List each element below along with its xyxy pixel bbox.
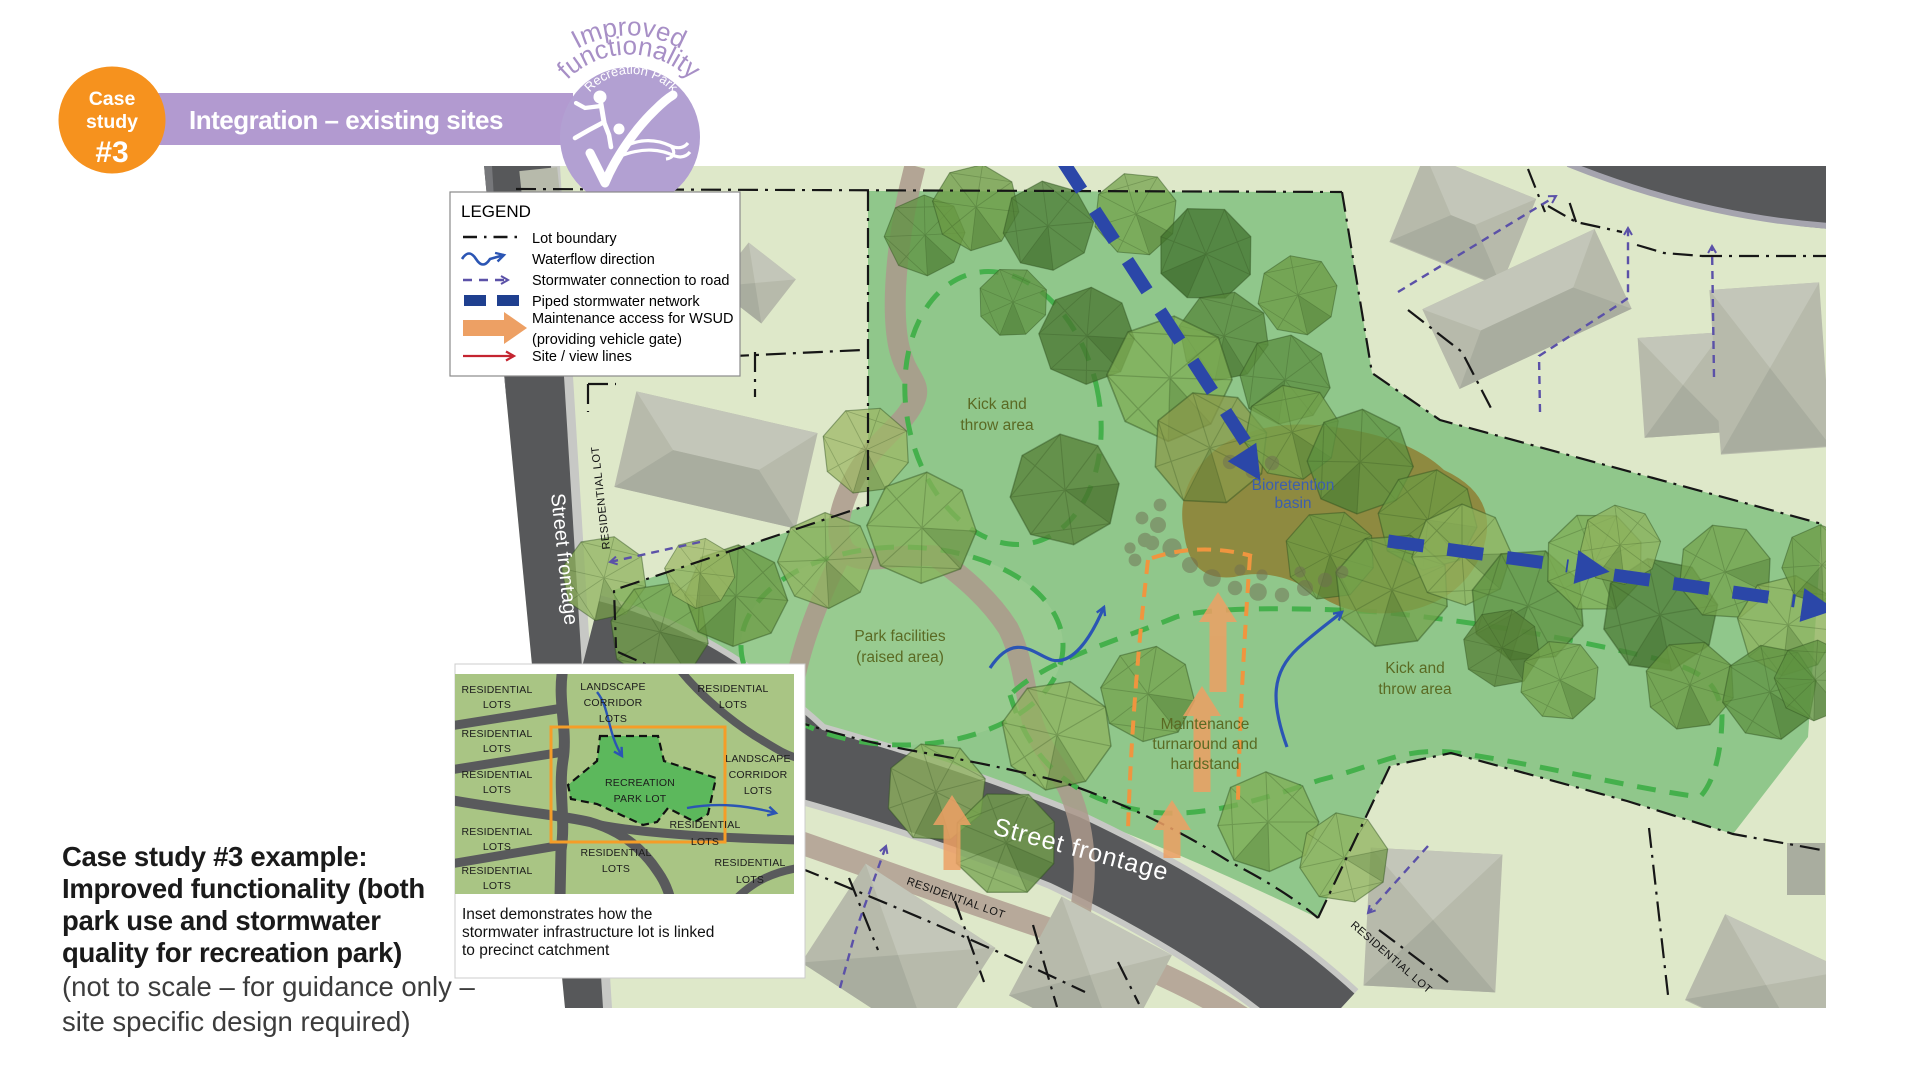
svg-text:LOTS: LOTS bbox=[602, 863, 630, 875]
svg-text:RECREATION: RECREATION bbox=[605, 777, 675, 789]
svg-text:study: study bbox=[86, 111, 138, 133]
svg-text:LEGEND: LEGEND bbox=[461, 202, 531, 221]
svg-text:RESIDENTIAL: RESIDENTIAL bbox=[461, 684, 532, 696]
svg-text:LOTS: LOTS bbox=[483, 841, 511, 853]
svg-text:LOTS: LOTS bbox=[744, 785, 772, 797]
svg-text:Case: Case bbox=[89, 88, 136, 110]
svg-text:CORRIDOR: CORRIDOR bbox=[729, 769, 788, 781]
svg-text:RESIDENTIAL: RESIDENTIAL bbox=[580, 847, 651, 859]
svg-text:Inset demonstrates how the: Inset demonstrates how the bbox=[462, 906, 652, 923]
svg-text:RESIDENTIAL: RESIDENTIAL bbox=[714, 857, 785, 869]
svg-text:PARK LOT: PARK LOT bbox=[614, 793, 667, 805]
svg-text:RESIDENTIAL: RESIDENTIAL bbox=[669, 819, 740, 831]
svg-text:Kick and: Kick and bbox=[967, 396, 1026, 413]
svg-text:Piped stormwater network: Piped stormwater network bbox=[532, 294, 700, 310]
svg-text:Bioretention: Bioretention bbox=[1252, 477, 1335, 494]
svg-text:hardstand: hardstand bbox=[1171, 756, 1240, 773]
svg-text:LOTS: LOTS bbox=[736, 874, 764, 886]
svg-text:quality for recreation park): quality for recreation park) bbox=[62, 937, 402, 968]
svg-text:(not to scale – for guidance o: (not to scale – for guidance only – bbox=[62, 971, 475, 1002]
svg-text:LANDSCAPE: LANDSCAPE bbox=[580, 681, 645, 693]
svg-text:RESIDENTIAL: RESIDENTIAL bbox=[461, 865, 532, 877]
svg-text:Maintenance: Maintenance bbox=[1161, 716, 1250, 733]
svg-text:#3: #3 bbox=[95, 136, 128, 169]
svg-text:stormwater infrastructure lot: stormwater infrastructure lot is linked bbox=[462, 924, 714, 941]
svg-text:Park facilities: Park facilities bbox=[854, 628, 946, 645]
svg-text:Site / view lines: Site / view lines bbox=[532, 349, 632, 365]
svg-text:throw area: throw area bbox=[960, 417, 1034, 434]
svg-text:RESIDENTIAL: RESIDENTIAL bbox=[461, 769, 532, 781]
svg-text:Waterflow direction: Waterflow direction bbox=[532, 252, 655, 268]
svg-text:Stormwater connection to road: Stormwater connection to road bbox=[532, 273, 729, 289]
svg-text:Kick and: Kick and bbox=[1385, 660, 1444, 677]
svg-text:Maintenance access for WSUD: Maintenance access for WSUD bbox=[532, 311, 733, 327]
svg-text:LOTS: LOTS bbox=[691, 836, 719, 848]
svg-text:Integration – existing sites: Integration – existing sites bbox=[189, 105, 503, 135]
svg-text:site specific design required): site specific design required) bbox=[62, 1006, 411, 1037]
svg-text:RESIDENTIAL: RESIDENTIAL bbox=[697, 683, 768, 695]
svg-text:throw area: throw area bbox=[1378, 681, 1452, 698]
svg-text:CORRIDOR: CORRIDOR bbox=[584, 697, 643, 709]
svg-text:(raised area): (raised area) bbox=[856, 649, 944, 666]
svg-text:LOTS: LOTS bbox=[719, 699, 747, 711]
svg-text:LOTS: LOTS bbox=[483, 699, 511, 711]
svg-text:RESIDENTIAL: RESIDENTIAL bbox=[461, 728, 532, 740]
svg-text:LOTS: LOTS bbox=[483, 784, 511, 796]
svg-text:Lot boundary: Lot boundary bbox=[532, 231, 617, 247]
svg-text:turnaround and: turnaround and bbox=[1152, 736, 1257, 753]
svg-text:LOTS: LOTS bbox=[483, 743, 511, 755]
svg-text:to precinct catchment: to precinct catchment bbox=[462, 942, 610, 959]
svg-text:RESIDENTIAL: RESIDENTIAL bbox=[461, 826, 532, 838]
svg-text:LOTS: LOTS bbox=[483, 880, 511, 892]
svg-text:LOTS: LOTS bbox=[599, 713, 627, 725]
svg-text:basin: basin bbox=[1274, 495, 1311, 512]
svg-text:(providing vehicle gate): (providing vehicle gate) bbox=[532, 332, 682, 348]
svg-text:park use and stormwater: park use and stormwater bbox=[62, 905, 381, 936]
svg-text:LANDSCAPE: LANDSCAPE bbox=[725, 753, 790, 765]
svg-text:Improved functionality (both: Improved functionality (both bbox=[62, 873, 425, 904]
svg-text:Case study #3 example:: Case study #3 example: bbox=[62, 841, 367, 872]
